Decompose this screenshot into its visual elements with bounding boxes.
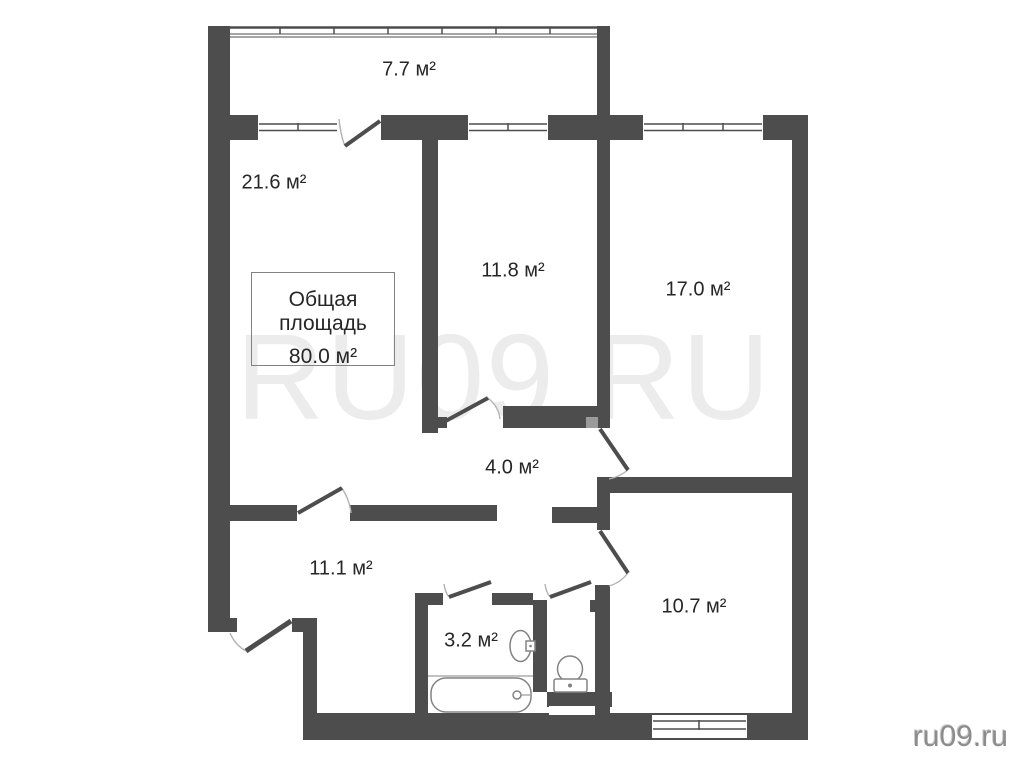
wall-bedroom-middle-bottom: [503, 406, 597, 428]
window-bedroom-right: [643, 115, 763, 140]
wall-balcony-right: [597, 26, 610, 115]
leaf-bedroom-middle-door: [442, 398, 488, 423]
wall-divider-middle-right: [597, 140, 610, 428]
total-area-value: 80.0 м²: [252, 345, 394, 369]
wall-corridor-piece: [552, 507, 597, 523]
sink-icon: [510, 631, 535, 662]
balcony-glazing: [222, 27, 598, 37]
room-label-hallway: 4.0 м²: [485, 457, 539, 480]
room-label-balcony: 7.7 м²: [382, 59, 436, 82]
window-bedroom-bottom: [652, 715, 747, 738]
wall-entry-stub-left: [208, 618, 237, 632]
wall-bathroom-top-a: [428, 593, 443, 605]
arc-wc-door: [545, 584, 550, 597]
wall-divider-right-rooms: [610, 477, 792, 493]
arc-apartment-entrance-door: [230, 633, 246, 651]
toilet-icon: [554, 656, 587, 692]
leaf-wc-door: [550, 582, 591, 597]
wall-top-b: [381, 115, 468, 140]
wall-wc-bottom: [547, 692, 612, 707]
wall-hall-piece: [597, 477, 610, 530]
wall-top-a: [208, 115, 258, 140]
wall-divider-living-bedroom: [422, 140, 438, 433]
wall-entry-vertical: [303, 618, 317, 718]
leaf-balcony-door: [345, 121, 380, 146]
leaf-living-entrance-door: [298, 488, 342, 513]
arc-living-entrance-door: [342, 488, 351, 513]
room-label-bedroom-right: 17.0 м²: [666, 279, 731, 302]
door-hinge-marker: [586, 417, 598, 428]
wall-entrance-top-left: [208, 505, 297, 521]
total-area-title: Общая площадь: [252, 288, 394, 336]
arc-balcony-door: [339, 119, 345, 146]
floor-plan-page: RU09.RU: [0, 0, 1024, 768]
wc-niche: [549, 706, 595, 715]
leaf-bedroom-right-door: [600, 429, 628, 470]
room-label-living-room: 21.6 м²: [242, 172, 307, 195]
site-credit-text: ru09.ru: [913, 720, 1008, 754]
total-area-box: Общая площадь 80.0 м²: [251, 272, 395, 366]
leaf-bathroom-door: [449, 582, 491, 597]
leaf-apartment-entrance-door: [246, 621, 291, 651]
arc-bedroom-middle-door: [488, 398, 500, 419]
wall-right-outer: [792, 115, 808, 740]
arc-bedroom-bottom-door: [609, 573, 628, 586]
leaf-bedroom-bottom-door: [600, 531, 628, 573]
window-living: [258, 115, 338, 140]
wall-entrance-top-right: [350, 505, 497, 521]
room-label-entrance-hall: 11.1 м²: [309, 558, 372, 581]
room-label-bathroom: 3.2 м²: [444, 630, 498, 653]
wall-bathroom-top-b: [492, 593, 533, 605]
window-bedroom-middle: [468, 115, 548, 140]
room-label-bedroom-bottom: 10.7 м²: [662, 596, 727, 619]
arc-bathroom-door: [444, 584, 449, 597]
floor-plan-drawing: [0, 0, 1024, 768]
wall-top-c: [548, 115, 643, 140]
wall-wc-top: [590, 600, 610, 612]
bathtub-icon: [428, 676, 533, 712]
room-label-bedroom-middle: 11.8 м²: [481, 260, 544, 283]
